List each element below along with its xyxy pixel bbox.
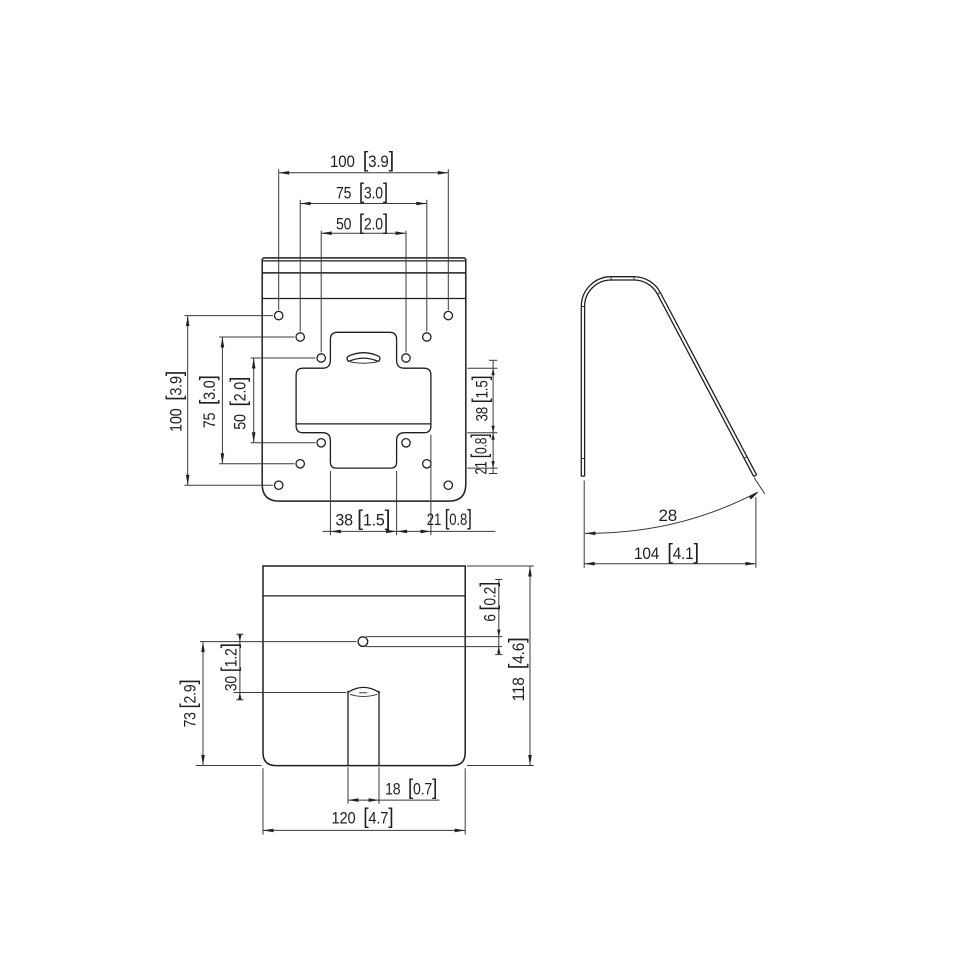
svg-text:28: 28	[659, 506, 678, 525]
